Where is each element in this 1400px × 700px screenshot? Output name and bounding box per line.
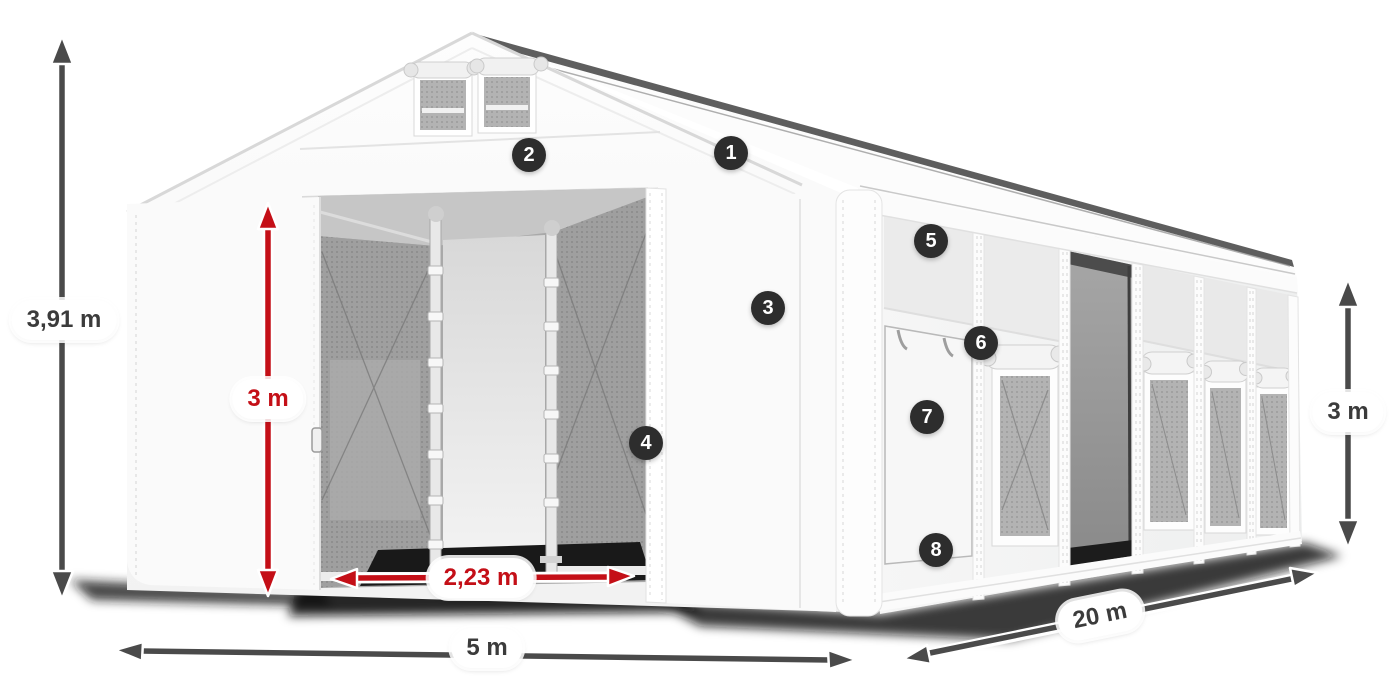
callout-marker-5: 5	[914, 224, 948, 258]
door-handle	[312, 428, 322, 452]
front-width-label: 5 m	[451, 628, 522, 668]
gable-vent-right	[470, 57, 548, 133]
callout-marker-3: 3	[751, 291, 785, 325]
front-doorway-interior	[318, 188, 652, 588]
side-height-label: 3 m	[1312, 392, 1383, 432]
side-window-1	[980, 345, 1067, 546]
tent-dimension-diagram: 3,91 m 3 m 2,23 m 5 m 20 m 3 m 1 2 3 4 5…	[0, 0, 1400, 700]
callout-marker-2: 2	[512, 138, 546, 172]
callout-marker-7: 7	[910, 400, 944, 434]
side-window-2	[1137, 352, 1201, 530]
side-zip-door	[885, 326, 972, 564]
vent-roller	[477, 58, 539, 75]
corner-band	[836, 190, 882, 616]
side-window-3	[1199, 361, 1253, 533]
tent-illustration	[0, 0, 1400, 700]
callout-marker-1: 1	[714, 136, 748, 170]
total-height-label: 3,91 m	[12, 300, 117, 340]
vent-roller	[411, 62, 473, 78]
door-width-label: 2,23 m	[429, 558, 534, 598]
sliding-door-right	[646, 187, 836, 612]
side-door-opening	[1064, 237, 1136, 566]
callout-marker-4: 4	[629, 426, 663, 460]
door-height-label: 3 m	[232, 379, 303, 419]
callout-marker-6: 6	[964, 326, 998, 360]
gable-vent-left	[404, 61, 481, 136]
callout-marker-8: 8	[919, 533, 953, 567]
